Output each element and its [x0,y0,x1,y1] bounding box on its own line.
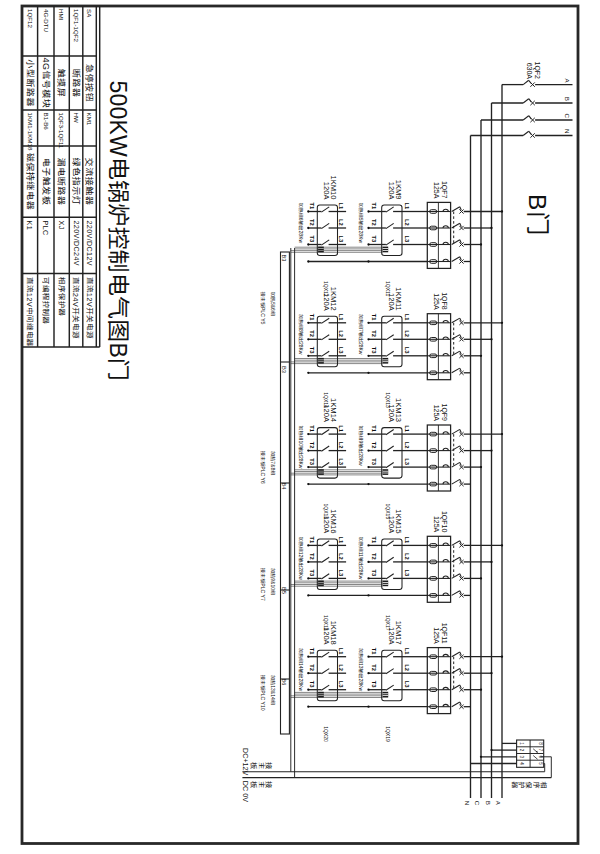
svg-text:断路器: 断路器 [71,69,81,98]
svg-text:接主板PLC Y6: 接主板PLC Y6 [260,450,266,484]
svg-text:T3: T3 [371,347,377,355]
svg-text:630A: 630A [526,63,533,80]
svg-text:加热组13输出28Kw: 加热组13输出28Kw [358,648,364,691]
svg-text:L2: L2 [404,664,410,671]
svg-text:A: A [564,78,571,83]
svg-text:T3: T3 [371,569,377,577]
svg-text:相序保护器: 相序保护器 [57,277,66,317]
svg-text:T2: T2 [309,330,315,337]
svg-text:加热组14输出28Kw: 加热组14输出28Kw [298,648,304,691]
svg-text:120A: 120A [322,516,331,535]
svg-text:B5: B5 [281,587,287,594]
svg-text:加热组8输出28Kw: 加热组8输出28Kw [298,314,304,355]
svg-text:相序保护器: 相序保护器 [511,781,547,789]
svg-text:L3: L3 [338,681,344,689]
svg-text:1KM1-1KM18: 1KM1-1KM18 [27,113,34,151]
svg-text:1QF12: 1QF12 [27,9,34,28]
svg-text:1QF7: 1QF7 [440,181,448,199]
svg-text:3: 3 [519,756,524,759]
svg-text:L2: L2 [404,330,410,337]
svg-text:T3: T3 [309,236,315,244]
svg-text:DC 0V: DC 0V [241,781,250,802]
svg-text:接主板: 接主板 [249,781,273,789]
svg-text:T3: T3 [309,347,315,355]
svg-text:T1: T1 [371,648,377,656]
svg-text:L1: L1 [338,203,344,211]
svg-text:L3: L3 [338,569,344,577]
svg-text:T1: T1 [309,314,315,322]
svg-text:T3: T3 [309,681,315,689]
svg-text:电子触发板: 电子触发板 [41,158,51,206]
svg-text:220V/DC12V: 220V/DC12V [85,221,94,266]
svg-text:B1-B6: B1-B6 [43,113,50,131]
svg-text:L2: L2 [404,553,410,560]
svg-text:接主板PLC Y7: 接主板PLC Y7 [260,567,266,601]
svg-text:加热组6输出28Kw: 加热组6输出28Kw [298,203,304,244]
svg-text:加热组12输出28Kw: 加热组12输出28Kw [298,537,304,580]
svg-text:HMI: HMI [58,9,65,21]
svg-text:2: 2 [519,749,524,752]
svg-text:120A: 120A [387,404,396,423]
svg-text:L1: L1 [404,425,410,433]
svg-text:120A: 120A [387,182,396,201]
svg-text:T3: T3 [371,458,377,466]
svg-text:C: C [564,114,571,119]
svg-text:加热组10输出28Kw: 加热组10输出28Kw [298,425,304,468]
svg-text:L3: L3 [404,569,410,577]
svg-text:5: 5 [538,762,543,765]
svg-text:L3: L3 [404,347,410,355]
svg-text:B4: B4 [281,483,287,490]
svg-text:L1: L1 [404,648,410,656]
svg-text:T3: T3 [371,236,377,244]
svg-text:1QF8: 1QF8 [440,292,448,310]
svg-text:T2: T2 [371,442,377,449]
svg-text:4G-DTU: 4G-DTU [43,9,50,32]
svg-text:接主板PLC Y10: 接主板PLC Y10 [260,674,266,711]
svg-text:T2: T2 [371,664,377,671]
svg-text:B3: B3 [281,366,287,373]
svg-text:直流24V开关电源: 直流24V开关电源 [71,277,80,339]
svg-text:加热9&10组: 加热9&10组 [270,568,276,595]
svg-text:125A: 125A [433,293,440,310]
svg-text:小型断路器: 小型断路器 [25,59,35,107]
svg-text:T2: T2 [371,219,377,226]
svg-text:6: 6 [538,756,543,759]
svg-text:L2: L2 [338,664,344,671]
svg-text:125A: 125A [433,182,440,199]
svg-text:加热组9输出28Kw: 加热组9输出28Kw [358,425,364,466]
svg-text:500KW电锅炉控制电气图B门: 500KW电锅炉控制电气图B门 [105,81,131,382]
svg-text:SA: SA [86,9,93,18]
svg-text:加热组7输出28Kw: 加热组7输出28Kw [358,314,364,355]
svg-text:L1: L1 [404,314,410,322]
svg-text:B3: B3 [281,255,287,262]
svg-text:加热组11输出28Kw: 加热组11输出28Kw [358,537,364,580]
svg-text:T1: T1 [371,314,377,322]
svg-text:4G信号模块: 4G信号模块 [41,57,51,108]
svg-text:磁保持继电器: 磁保持继电器 [25,153,35,210]
svg-text:120A: 120A [387,516,396,535]
svg-text:KM1: KM1 [86,113,93,126]
svg-text:L3: L3 [338,236,344,244]
svg-text:120A: 120A [322,404,331,423]
svg-text:B: B [485,801,492,805]
svg-text:1QF3-1QF11: 1QF3-1QF11 [58,113,65,150]
svg-text:接主板: 接主板 [249,762,273,770]
svg-text:T3: T3 [309,458,315,466]
svg-text:L2: L2 [338,442,344,449]
svg-text:T1: T1 [371,203,377,211]
svg-text:1QF10: 1QF10 [440,511,448,533]
svg-text:T1: T1 [309,203,315,211]
svg-text:L1: L1 [404,203,410,211]
svg-text:1QX20: 1QX20 [323,726,329,742]
svg-text:125A: 125A [433,405,440,422]
svg-text:L2: L2 [404,219,410,226]
svg-text:L3: L3 [404,681,410,689]
svg-text:N: N [464,801,471,805]
svg-text:1QX19: 1QX19 [385,726,391,742]
svg-text:DC+12V: DC+12V [241,748,250,776]
svg-text:T1: T1 [309,648,315,656]
svg-text:加热13&14组: 加热13&14组 [270,675,276,705]
svg-text:绿色指示灯: 绿色指示灯 [71,158,81,206]
svg-text:C: C [474,801,481,806]
svg-text:B6: B6 [281,679,287,686]
svg-text:125A: 125A [433,627,440,644]
svg-text:A: A [495,801,502,806]
svg-text:加热组5输出28Kw: 加热组5输出28Kw [358,203,364,244]
svg-text:7: 7 [538,749,543,752]
svg-text:T2: T2 [371,553,377,560]
svg-text:K1: K1 [25,221,34,231]
svg-text:T1: T1 [371,425,377,433]
svg-text:120A: 120A [322,293,331,312]
svg-text:1QF9: 1QF9 [440,403,448,421]
svg-text:L2: L2 [338,219,344,226]
svg-text:接主板PLC Y5: 接主板PLC Y5 [260,291,266,325]
svg-text:漏电断路器: 漏电断路器 [56,158,66,206]
svg-text:XJ: XJ [57,221,66,230]
svg-text:T1: T1 [309,425,315,433]
svg-text:加热5&6组: 加热5&6组 [270,292,276,316]
svg-text:可编程控制器: 可编程控制器 [41,277,50,324]
svg-text:1QF2: 1QF2 [533,61,541,79]
svg-text:T2: T2 [309,219,315,226]
svg-text:HW: HW [73,113,80,123]
svg-text:B门: B门 [524,194,551,237]
svg-text:120A: 120A [387,627,396,646]
svg-text:L2: L2 [338,330,344,337]
svg-text:220V/DC24V: 220V/DC24V [72,221,81,266]
svg-text:8: 8 [538,742,543,745]
svg-text:L1: L1 [338,648,344,656]
svg-text:1: 1 [519,742,524,745]
svg-text:L3: L3 [338,347,344,355]
svg-text:125A: 125A [433,516,440,533]
svg-text:触摸屏: 触摸屏 [56,69,66,98]
svg-text:T2: T2 [309,664,315,671]
svg-text:1QF1-1QF2: 1QF1-1QF2 [73,9,80,43]
svg-text:T3: T3 [309,569,315,577]
svg-text:T3: T3 [371,681,377,689]
svg-text:T2: T2 [309,553,315,560]
svg-text:4: 4 [519,762,524,765]
svg-text:T1: T1 [371,536,377,544]
svg-text:L1: L1 [404,536,410,544]
svg-text:T1: T1 [309,536,315,544]
svg-text:加热7&8组: 加热7&8组 [270,451,276,475]
svg-text:L1: L1 [338,314,344,322]
svg-text:B: B [564,97,571,101]
svg-text:L3: L3 [404,458,410,466]
svg-text:1QF11: 1QF11 [440,623,448,644]
svg-text:120A: 120A [322,182,331,201]
svg-text:L3: L3 [404,236,410,244]
svg-text:直流12V开关电源: 直流12V开关电源 [85,277,94,339]
svg-text:L1: L1 [338,425,344,433]
svg-text:交流接触器: 交流接触器 [84,158,94,206]
svg-text:急停按钮: 急停按钮 [84,64,94,102]
svg-text:120A: 120A [387,293,396,312]
svg-text:T2: T2 [371,330,377,337]
svg-text:T2: T2 [309,442,315,449]
svg-text:N: N [564,129,571,133]
svg-text:L3: L3 [338,458,344,466]
svg-text:120A: 120A [322,627,331,646]
svg-text:直流12V中间继电器: 直流12V中间继电器 [25,277,34,347]
svg-text:L2: L2 [338,553,344,560]
svg-text:PLC: PLC [41,221,50,236]
svg-text:L1: L1 [338,536,344,544]
svg-text:L2: L2 [404,442,410,449]
